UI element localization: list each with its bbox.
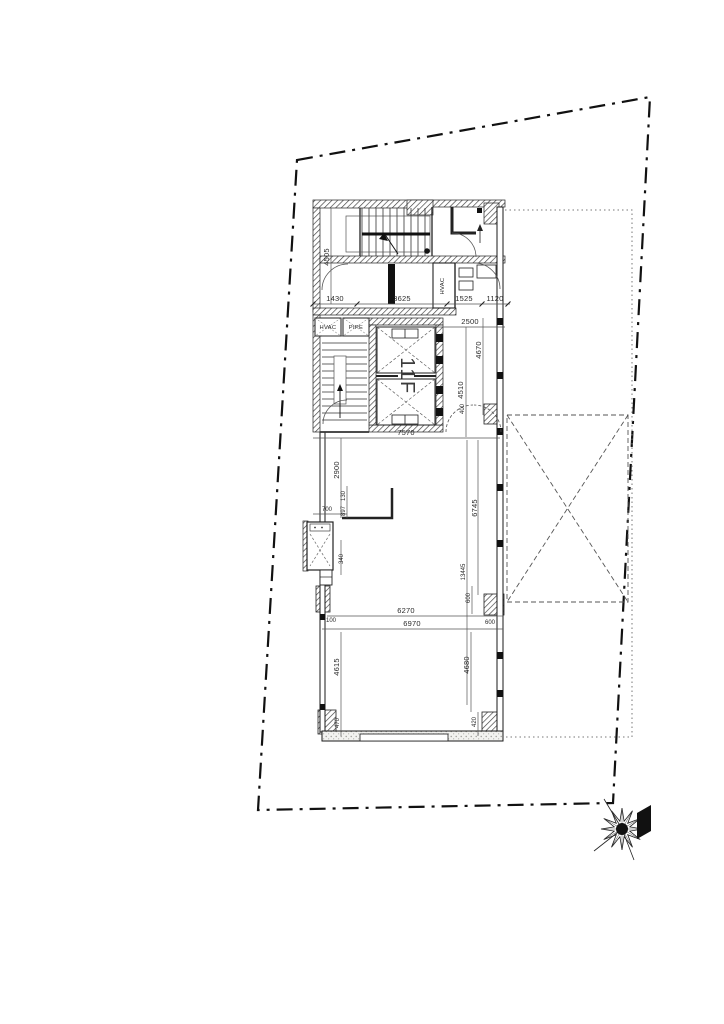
dim-600-v: 600 (466, 592, 472, 603)
dim-4510: 4510 (456, 381, 465, 399)
dim-400: 400 (460, 403, 466, 414)
north-arrow (594, 799, 651, 860)
compass-pointer (637, 805, 651, 839)
label-pipe-shaft: PIPE (349, 325, 363, 331)
dim-1430: 1430 (326, 294, 344, 303)
floor-label-11f: 11F (396, 357, 418, 394)
dim-2500: 2500 (461, 317, 479, 326)
dim-7570: 7570 (397, 428, 415, 437)
dim-4615: 4615 (332, 658, 341, 676)
dim-6745: 6745 (470, 499, 479, 517)
dim-13445: 13445 (461, 563, 467, 580)
dim-6270: 6270 (397, 606, 415, 615)
dim-1525: 1525 (455, 294, 473, 303)
exterior-walls (320, 207, 503, 741)
dim-4505: 4505 (322, 248, 331, 266)
dim-4670: 4670 (474, 341, 483, 359)
wall-marker (477, 208, 482, 213)
compass-hub (616, 823, 628, 835)
dim-897: 897 (341, 505, 347, 516)
partial-wall (342, 488, 392, 518)
up-arrowhead (477, 224, 483, 231)
label-hvac-room: HVAC (440, 278, 446, 295)
door-arc (322, 264, 348, 290)
fixture (459, 268, 473, 277)
dim-600-h: 600 (485, 620, 496, 626)
door-arc (452, 233, 476, 257)
dim-340: 340 (339, 553, 345, 564)
dim-4680: 4680 (462, 656, 471, 674)
dim-130: 130 (341, 490, 347, 501)
dim-100: 100 (326, 618, 337, 624)
dim-470: 470 (335, 717, 341, 728)
label-hvac-shaft: HVAC (320, 325, 337, 331)
fixture (459, 281, 473, 290)
stair-core (320, 336, 369, 432)
dim-3625: 3625 (393, 294, 411, 303)
dim-1120: 1120 (487, 294, 504, 303)
floor-plan-sheet: 1430 3625 1525 1120 4505 7570 2500 4670 … (0, 0, 724, 1024)
void-x-area (507, 415, 628, 602)
dim-2900: 2900 (332, 461, 341, 479)
floor-plan-drawing: 1430 3625 1525 1120 4505 7570 2500 4670 … (0, 0, 724, 1024)
dim-6970: 6970 (403, 619, 421, 628)
dim-700: 700 (322, 507, 333, 513)
service-shaft (307, 522, 333, 585)
dim-420: 420 (472, 716, 478, 727)
columns (316, 404, 504, 736)
setback-outline (505, 210, 632, 737)
